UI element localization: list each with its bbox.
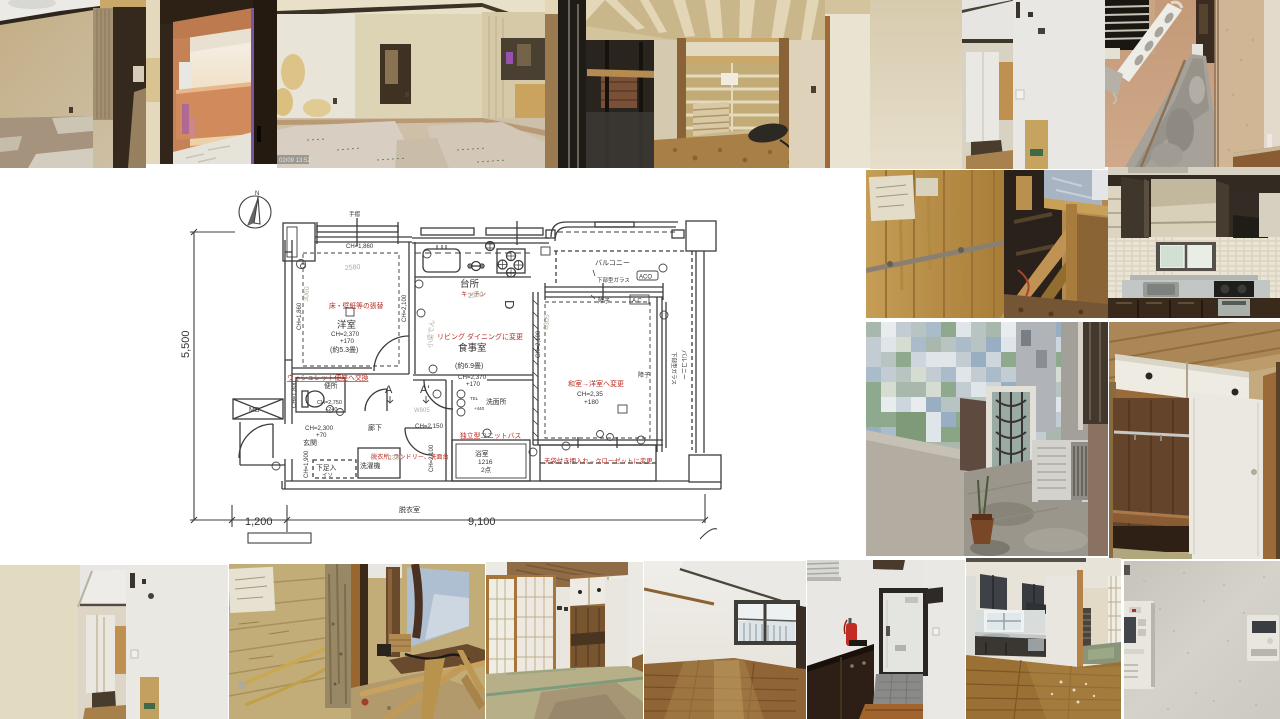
svg-text:下足入: 下足入 xyxy=(316,464,337,472)
svg-text:下部型ガラス: 下部型ガラス xyxy=(597,276,630,284)
svg-text:バルコニー: バルコニー xyxy=(680,350,687,380)
svg-text:2580: 2580 xyxy=(468,292,484,300)
svg-text:天袋付き押入れ→クローゼットに変更: 天袋付き押入れ→クローゼットに変更 xyxy=(544,456,653,465)
svg-text:CH=2,370: CH=2,370 xyxy=(331,331,360,338)
svg-text:1,200: 1,200 xyxy=(245,516,273,528)
svg-text:台所: 台所 xyxy=(460,278,480,290)
svg-text:+170: +170 xyxy=(466,381,480,388)
svg-text:+440: +440 xyxy=(474,406,485,411)
svg-text:玄関: 玄関 xyxy=(303,438,317,447)
svg-text:リビング ダイニングに変更: リビング ダイニングに変更 xyxy=(437,332,523,341)
svg-text:A': A' xyxy=(420,384,429,396)
svg-text:CH=1,860: CH=1,860 xyxy=(297,302,303,330)
svg-text:便所: 便所 xyxy=(324,381,338,390)
svg-text:障子: 障子 xyxy=(638,371,650,379)
svg-text:A: A xyxy=(385,384,393,396)
svg-text:MB: MB xyxy=(249,407,260,414)
svg-text:CH=2,100: CH=2,100 xyxy=(429,444,435,472)
svg-text:洗面所: 洗面所 xyxy=(486,397,507,406)
svg-text:床・壁紙等の張替: 床・壁紙等の張替 xyxy=(329,301,384,310)
svg-text:(約6.9畳): (約6.9畳) xyxy=(455,361,483,370)
svg-text:CH=2,100: CH=2,100 xyxy=(402,294,408,322)
svg-text:CH=2,100: CH=2,100 xyxy=(536,330,542,358)
svg-text:脱衣所, ランドリー、洗面台: 脱衣所, ランドリー、洗面台 xyxy=(371,453,449,461)
svg-text:A C: A C xyxy=(632,299,642,305)
svg-text:バルコニー: バルコニー xyxy=(595,259,630,267)
svg-text:ウォシュレット便座へ交換: ウォシュレット便座へ交換 xyxy=(287,373,369,382)
svg-text:0305: 0305 xyxy=(543,314,551,330)
svg-text:手摺: 手摺 xyxy=(349,210,361,218)
svg-text:(約5.3畳): (約5.3畳) xyxy=(330,345,358,354)
svg-text:TEL: TEL xyxy=(470,396,479,401)
svg-text:+70: +70 xyxy=(316,432,327,439)
svg-text:1216: 1216 xyxy=(478,459,493,466)
svg-text:N: N xyxy=(255,191,259,197)
svg-text:2300: 2300 xyxy=(388,454,404,462)
svg-text:+180: +180 xyxy=(584,399,599,406)
svg-text:CH=2,300: CH=2,300 xyxy=(305,425,334,432)
svg-text:9,100: 9,100 xyxy=(468,516,496,528)
svg-text:CH=1,900: CH=1,900 xyxy=(304,450,310,478)
svg-text:脱衣室: 脱衣室 xyxy=(399,505,420,514)
svg-text:洗濯機: 洗濯機 xyxy=(360,461,381,470)
svg-text:洋室: 洋室 xyxy=(337,319,356,331)
svg-text:5,500: 5,500 xyxy=(180,330,192,358)
svg-text:3060: 3060 xyxy=(303,286,311,302)
svg-text:小梁でん: 小梁でん xyxy=(425,319,436,348)
svg-text:W805: W805 xyxy=(414,408,430,414)
svg-text:CH=2,370: CH=2,370 xyxy=(458,374,487,381)
svg-text:CH=2,150: CH=2,150 xyxy=(415,423,444,430)
svg-text:+170: +170 xyxy=(340,338,354,345)
svg-text:下部型ガラス: 下部型ガラス xyxy=(670,352,678,385)
svg-text:2点: 2点 xyxy=(481,466,492,474)
svg-text:CH=2,35: CH=2,35 xyxy=(577,391,603,398)
svg-text:ACO: ACO xyxy=(639,275,652,281)
svg-text:D: D xyxy=(502,300,517,309)
svg-text:廊下: 廊下 xyxy=(368,423,382,432)
svg-text:CH=1,800: CH=1,800 xyxy=(292,380,298,408)
svg-text:イソ: イソ xyxy=(322,473,333,479)
svg-text:CH=1,860: CH=1,860 xyxy=(346,244,374,250)
svg-text:障子: 障子 xyxy=(598,297,610,305)
svg-text:和室→洋室へ変更: 和室→洋室へ変更 xyxy=(568,379,624,388)
svg-text:2580: 2580 xyxy=(345,264,361,272)
svg-text:食事室: 食事室 xyxy=(458,342,487,354)
svg-text:浴室: 浴室 xyxy=(475,449,489,458)
